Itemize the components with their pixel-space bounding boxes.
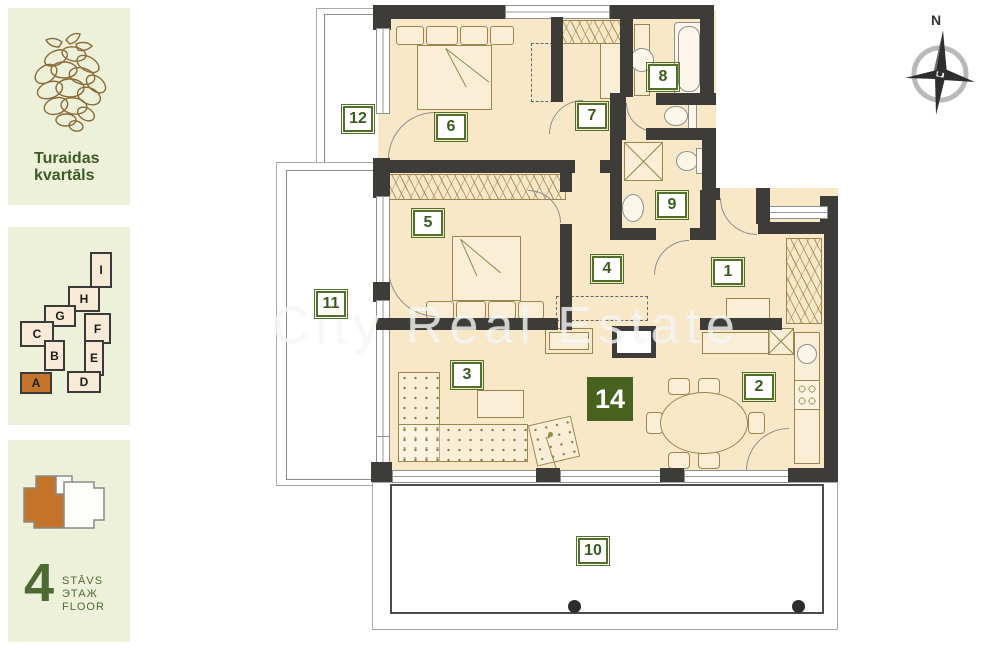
- wall-segment: [656, 93, 716, 105]
- stove: [794, 380, 820, 410]
- room-badge-11: 11: [316, 291, 346, 317]
- room-badge-7: 7: [577, 103, 607, 129]
- floor-number: 4: [24, 552, 54, 614]
- blanket-fold-line: [460, 239, 500, 273]
- window: [560, 470, 662, 483]
- double-bed: [417, 45, 492, 110]
- floor-plan-page: { "branding": { "project_line1": "Turaid…: [0, 0, 1000, 650]
- toilet: [676, 151, 698, 171]
- compass-north-label: N: [931, 12, 941, 28]
- building-label: A: [32, 376, 41, 390]
- room-badge-6: 6: [436, 114, 466, 140]
- bed-pillow: [490, 26, 514, 45]
- dining-chair: [668, 378, 690, 395]
- dresser-counter: [600, 43, 622, 99]
- balcony-12: [324, 14, 380, 164]
- wall-segment: [373, 282, 390, 302]
- terrace-column: [792, 600, 805, 613]
- wall-segment: [560, 173, 572, 192]
- wardrobe-hatched: [786, 238, 822, 324]
- bed-pillow: [396, 26, 424, 45]
- shaft: [612, 326, 656, 358]
- terrace-column: [568, 600, 581, 613]
- window: [376, 196, 390, 284]
- bathtub-inner: [678, 26, 700, 92]
- blanket-fold-line: [445, 48, 489, 83]
- toilet: [664, 106, 688, 126]
- project-title-line1: Turaidas: [34, 150, 100, 167]
- building-label: I: [99, 263, 102, 277]
- wall-segment: [387, 160, 575, 173]
- building-label: H: [80, 292, 89, 306]
- floor-label-lv: STĀVS: [62, 575, 105, 588]
- dining-table: [660, 392, 748, 454]
- wall-segment: [756, 188, 770, 224]
- bed-pillow: [460, 26, 488, 45]
- sidebar-panel-branding: Turaidas kvartāls: [8, 8, 130, 205]
- bed-pillow: [426, 26, 458, 45]
- room-badge-9: 9: [657, 192, 687, 218]
- wall-segment: [551, 17, 563, 102]
- room-badge-3: 3: [452, 362, 482, 388]
- room-badge-2: 2: [744, 374, 774, 400]
- wall-segment: [371, 462, 392, 482]
- window-railing: [766, 206, 828, 219]
- room-badge-1: 1: [713, 259, 743, 285]
- wardrobe-hatched: [558, 20, 622, 44]
- window: [684, 470, 790, 483]
- building-block-i: I: [90, 252, 112, 288]
- fridge: [768, 328, 794, 355]
- project-title: Turaidas kvartāls: [34, 150, 100, 184]
- bed-pillow: [488, 301, 516, 319]
- watermark-logo: [188, 292, 260, 366]
- wall-segment: [373, 5, 391, 30]
- floor-level-labels: STĀVS ЭТАЖ FLOOR: [62, 575, 105, 614]
- bed-pillow: [518, 301, 544, 319]
- building-block-a-highlighted: A: [20, 372, 52, 394]
- shower-cabin: [624, 142, 663, 181]
- building-label: D: [80, 375, 89, 389]
- floor-label-en: FLOOR: [62, 601, 105, 614]
- building-block-b: B: [44, 340, 65, 371]
- room-badge-10: 10: [578, 538, 608, 564]
- floor-footprint-icon: [16, 466, 116, 536]
- wall-segment: [536, 468, 560, 482]
- room-badge-5: 5: [413, 210, 443, 236]
- building-label: F: [94, 322, 101, 336]
- pinecone-icon: [26, 26, 114, 138]
- floor-label-ru: ЭТАЖ: [62, 588, 105, 601]
- project-title-line2: kvartāls: [34, 167, 100, 184]
- room-badge-8: 8: [648, 64, 678, 90]
- tv-cabinet: [545, 328, 593, 354]
- wall-segment: [646, 128, 716, 140]
- wall-segment: [600, 160, 622, 173]
- dining-chair: [748, 412, 765, 434]
- wall-segment: [373, 5, 513, 19]
- building-label: C: [33, 327, 42, 341]
- floor-lamp: [548, 432, 553, 437]
- wall-segment: [376, 318, 558, 330]
- building-block-d: D: [67, 371, 101, 393]
- wall-segment: [700, 17, 714, 103]
- window: [392, 470, 538, 483]
- cabinet-dashed: [531, 43, 553, 102]
- wall-segment: [824, 232, 838, 482]
- wall-segment: [702, 140, 716, 240]
- kitchen-sink: [797, 344, 817, 364]
- bed-pillow: [456, 301, 486, 319]
- window: [376, 28, 390, 114]
- wall-segment: [660, 468, 684, 482]
- wall-segment: [700, 318, 782, 330]
- dining-chair: [698, 452, 720, 469]
- wall-segment: [560, 224, 572, 330]
- room-badge-4: 4: [592, 256, 622, 282]
- wall-segment: [690, 228, 716, 240]
- wall-segment: [610, 228, 656, 240]
- dining-chair: [668, 452, 690, 469]
- wall-segment: [620, 17, 633, 97]
- building-label: B: [50, 349, 59, 363]
- blanket-fold-line: [445, 48, 467, 87]
- kitchen-counter-top: [702, 332, 770, 354]
- building-label: G: [55, 309, 64, 323]
- apartment-number-badge: 14: [587, 377, 633, 421]
- room-badge-12: 12: [343, 106, 373, 132]
- coffee-table: [477, 390, 524, 418]
- double-bed: [452, 236, 521, 301]
- building-label: E: [90, 351, 98, 365]
- toilet-tank: [688, 104, 697, 129]
- washbasin: [622, 194, 644, 222]
- compass-rose-icon: [900, 16, 980, 116]
- sofa-corner-horizontal-arm: [398, 424, 528, 462]
